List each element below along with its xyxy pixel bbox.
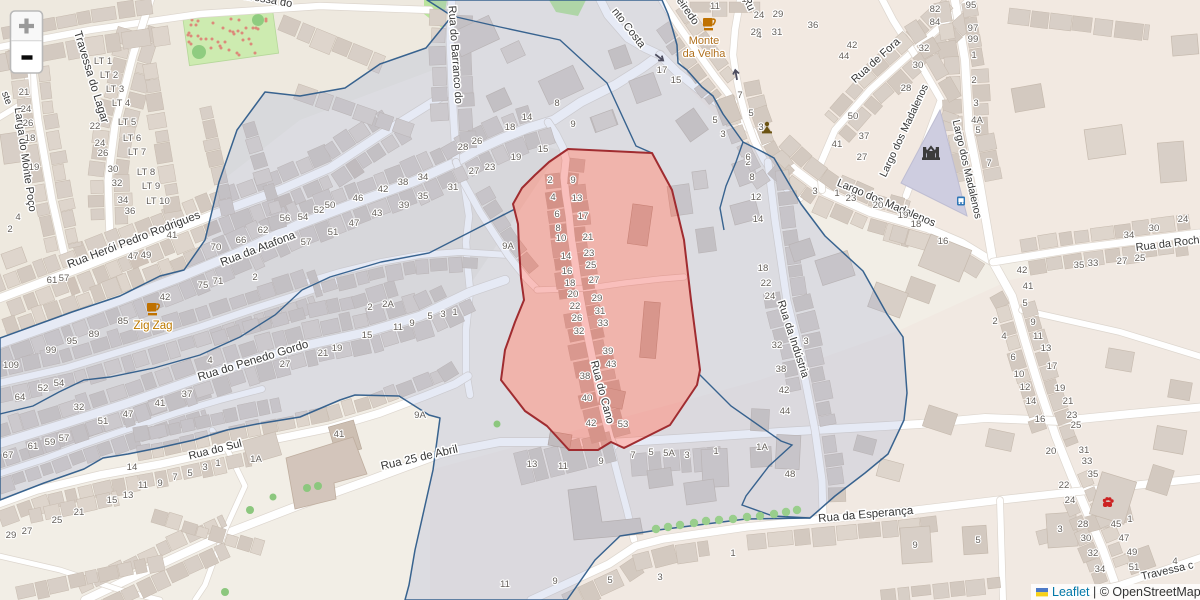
svg-text:4: 4 bbox=[207, 355, 213, 366]
svg-text:3: 3 bbox=[1057, 524, 1062, 535]
svg-text:3: 3 bbox=[812, 186, 817, 197]
svg-text:27: 27 bbox=[589, 275, 600, 286]
svg-text:9A: 9A bbox=[414, 410, 426, 421]
svg-text:9: 9 bbox=[552, 576, 557, 587]
svg-text:19: 19 bbox=[29, 162, 40, 173]
svg-text:24: 24 bbox=[1065, 495, 1076, 506]
svg-text:14: 14 bbox=[127, 462, 138, 473]
svg-text:27: 27 bbox=[469, 166, 480, 177]
svg-text:97: 97 bbox=[968, 23, 979, 34]
svg-text:28: 28 bbox=[901, 83, 912, 94]
svg-text:42: 42 bbox=[586, 418, 597, 429]
svg-text:25: 25 bbox=[586, 260, 597, 271]
svg-text:75: 75 bbox=[198, 280, 209, 291]
svg-text:30: 30 bbox=[1149, 223, 1160, 234]
svg-text:35: 35 bbox=[1074, 260, 1085, 271]
svg-text:27: 27 bbox=[22, 526, 33, 537]
svg-text:20: 20 bbox=[873, 200, 884, 211]
svg-text:24: 24 bbox=[21, 104, 32, 115]
svg-text:LT 4: LT 4 bbox=[112, 98, 131, 109]
svg-text:9A: 9A bbox=[502, 241, 514, 252]
svg-text:14: 14 bbox=[1026, 396, 1037, 407]
svg-text:42: 42 bbox=[779, 385, 790, 396]
svg-text:11: 11 bbox=[393, 322, 403, 333]
svg-text:LT 1: LT 1 bbox=[94, 56, 112, 67]
svg-text:LT 8: LT 8 bbox=[137, 167, 155, 178]
svg-text:4: 4 bbox=[756, 30, 762, 41]
svg-text:31: 31 bbox=[772, 27, 783, 38]
svg-text:26: 26 bbox=[23, 118, 34, 129]
svg-text:20: 20 bbox=[568, 289, 579, 300]
svg-text:50: 50 bbox=[325, 200, 336, 211]
svg-text:21: 21 bbox=[74, 507, 85, 518]
svg-text:2: 2 bbox=[992, 316, 997, 327]
svg-text:43: 43 bbox=[606, 359, 617, 370]
svg-text:46: 46 bbox=[353, 193, 364, 204]
svg-text:2A: 2A bbox=[382, 299, 394, 310]
svg-text:31: 31 bbox=[1079, 445, 1090, 456]
svg-text:2: 2 bbox=[971, 75, 976, 86]
svg-text:2: 2 bbox=[7, 224, 12, 235]
svg-text:LT 7: LT 7 bbox=[128, 147, 146, 158]
svg-text:32: 32 bbox=[112, 178, 123, 189]
svg-text:17: 17 bbox=[657, 65, 668, 76]
svg-text:da Velha: da Velha bbox=[683, 48, 727, 60]
svg-text:12: 12 bbox=[1020, 382, 1031, 393]
svg-text:LT 2: LT 2 bbox=[100, 70, 118, 81]
svg-text:49: 49 bbox=[1127, 547, 1138, 558]
svg-text:8: 8 bbox=[749, 172, 754, 183]
svg-text:5: 5 bbox=[748, 108, 753, 119]
svg-text:67: 67 bbox=[3, 450, 14, 461]
svg-text:38: 38 bbox=[580, 371, 591, 382]
svg-text:39: 39 bbox=[399, 200, 410, 211]
svg-text:14: 14 bbox=[522, 112, 533, 123]
svg-text:Leaflet: Leaflet bbox=[1052, 585, 1090, 599]
svg-text:54: 54 bbox=[298, 212, 309, 223]
svg-text:32: 32 bbox=[574, 326, 585, 337]
svg-text:32: 32 bbox=[772, 340, 783, 351]
svg-text:26: 26 bbox=[572, 313, 583, 324]
svg-text:18: 18 bbox=[25, 133, 36, 144]
svg-text:11: 11 bbox=[710, 1, 720, 12]
svg-text:4: 4 bbox=[1172, 556, 1178, 567]
svg-text:25: 25 bbox=[52, 515, 63, 526]
svg-text:64: 64 bbox=[15, 392, 26, 403]
svg-text:42: 42 bbox=[160, 292, 171, 303]
svg-text:53: 53 bbox=[618, 419, 629, 430]
svg-text:99: 99 bbox=[46, 345, 57, 356]
svg-text:19: 19 bbox=[332, 343, 343, 354]
svg-text:Zig Zag: Zig Zag bbox=[134, 320, 173, 332]
svg-text:LT 10: LT 10 bbox=[146, 196, 170, 207]
svg-text:25: 25 bbox=[1071, 420, 1082, 431]
svg-text:32: 32 bbox=[74, 402, 85, 413]
svg-text:42: 42 bbox=[847, 40, 858, 51]
svg-text:51: 51 bbox=[328, 227, 339, 238]
svg-text:18: 18 bbox=[758, 263, 769, 274]
svg-text:51: 51 bbox=[1129, 562, 1140, 573]
svg-text:24: 24 bbox=[754, 10, 765, 21]
svg-text:5A: 5A bbox=[663, 448, 675, 459]
svg-text:26: 26 bbox=[472, 136, 483, 147]
svg-text:36: 36 bbox=[125, 206, 136, 217]
svg-text:30: 30 bbox=[1081, 533, 1092, 544]
svg-text:1: 1 bbox=[730, 548, 735, 559]
svg-text:11: 11 bbox=[558, 461, 568, 472]
svg-text:3: 3 bbox=[202, 462, 207, 473]
svg-text:1A: 1A bbox=[250, 454, 262, 465]
svg-text:7: 7 bbox=[737, 90, 742, 101]
svg-text:9: 9 bbox=[1030, 317, 1035, 328]
svg-text:18: 18 bbox=[565, 278, 576, 289]
svg-text:34: 34 bbox=[118, 195, 129, 206]
svg-text:71: 71 bbox=[213, 276, 224, 287]
svg-text:34: 34 bbox=[1124, 230, 1135, 241]
svg-text:11: 11 bbox=[1033, 331, 1043, 342]
svg-text:4: 4 bbox=[15, 212, 21, 223]
svg-text:37: 37 bbox=[182, 389, 193, 400]
svg-text:1: 1 bbox=[741, 0, 746, 5]
svg-text:4: 4 bbox=[1001, 331, 1007, 342]
svg-text:8: 8 bbox=[554, 98, 559, 109]
svg-text:5: 5 bbox=[712, 115, 717, 126]
svg-text:31: 31 bbox=[595, 306, 606, 317]
svg-text:43: 43 bbox=[372, 208, 383, 219]
svg-text:29: 29 bbox=[592, 293, 603, 304]
svg-text:23: 23 bbox=[584, 248, 595, 259]
svg-text:34: 34 bbox=[1095, 564, 1106, 575]
svg-text:45: 45 bbox=[1111, 519, 1122, 530]
svg-text:11: 11 bbox=[138, 480, 148, 491]
svg-text:40: 40 bbox=[582, 393, 593, 404]
svg-text:32: 32 bbox=[1088, 548, 1099, 559]
svg-text:42: 42 bbox=[378, 184, 389, 195]
svg-text:47: 47 bbox=[128, 251, 139, 262]
svg-text:5: 5 bbox=[648, 447, 653, 458]
svg-text:32: 32 bbox=[919, 43, 930, 54]
svg-text:23: 23 bbox=[485, 162, 496, 173]
svg-text:39: 39 bbox=[603, 346, 614, 357]
svg-text:52: 52 bbox=[314, 205, 325, 216]
svg-text:LT 6: LT 6 bbox=[123, 133, 141, 144]
svg-text:21: 21 bbox=[1063, 396, 1074, 407]
svg-text:62: 62 bbox=[258, 225, 269, 236]
svg-text:7: 7 bbox=[986, 158, 991, 169]
svg-text:1: 1 bbox=[215, 458, 220, 469]
svg-text:3: 3 bbox=[657, 572, 662, 583]
svg-text:| © OpenStreetMap: | © OpenStreetMap bbox=[1093, 585, 1200, 599]
svg-text:5: 5 bbox=[187, 468, 192, 479]
svg-text:9: 9 bbox=[912, 540, 917, 551]
svg-text:LT 9: LT 9 bbox=[142, 181, 160, 192]
svg-text:22: 22 bbox=[1059, 480, 1070, 491]
svg-text:41: 41 bbox=[167, 230, 178, 241]
svg-text:2: 2 bbox=[547, 175, 552, 186]
svg-text:28: 28 bbox=[458, 142, 469, 153]
svg-text:41: 41 bbox=[1023, 281, 1034, 292]
svg-text:47: 47 bbox=[123, 409, 134, 420]
svg-text:21: 21 bbox=[583, 232, 594, 243]
svg-text:52: 52 bbox=[38, 383, 49, 394]
svg-text:10: 10 bbox=[556, 233, 567, 244]
svg-text:95: 95 bbox=[966, 0, 977, 11]
svg-text:Monte: Monte bbox=[689, 35, 720, 47]
svg-text:27: 27 bbox=[857, 152, 868, 163]
svg-text:25: 25 bbox=[1135, 253, 1146, 264]
svg-text:24: 24 bbox=[1178, 214, 1189, 225]
svg-text:19: 19 bbox=[1055, 383, 1066, 394]
svg-text:1: 1 bbox=[713, 446, 718, 457]
svg-text:5: 5 bbox=[427, 311, 432, 322]
svg-text:18: 18 bbox=[505, 122, 516, 133]
svg-text:82: 82 bbox=[930, 4, 941, 15]
svg-text:3: 3 bbox=[803, 336, 808, 347]
svg-text:9: 9 bbox=[409, 318, 414, 329]
svg-text:95: 95 bbox=[67, 336, 78, 347]
svg-text:10: 10 bbox=[1014, 369, 1025, 380]
svg-text:5: 5 bbox=[607, 575, 612, 586]
svg-text:9: 9 bbox=[570, 119, 575, 130]
svg-text:6: 6 bbox=[1010, 352, 1015, 363]
svg-text:18: 18 bbox=[911, 219, 922, 230]
svg-text:35: 35 bbox=[418, 191, 429, 202]
svg-text:3: 3 bbox=[758, 122, 763, 133]
svg-text:6: 6 bbox=[745, 152, 750, 163]
svg-text:38: 38 bbox=[398, 177, 409, 188]
svg-text:35: 35 bbox=[1088, 469, 1099, 480]
svg-text:5: 5 bbox=[975, 125, 980, 136]
svg-text:22: 22 bbox=[90, 121, 101, 132]
svg-text:22: 22 bbox=[761, 278, 772, 289]
svg-text:41: 41 bbox=[155, 398, 166, 409]
svg-text:4: 4 bbox=[550, 192, 556, 203]
svg-text:13: 13 bbox=[527, 459, 538, 470]
svg-text:16: 16 bbox=[938, 236, 949, 247]
svg-text:13: 13 bbox=[1041, 343, 1052, 354]
svg-text:56: 56 bbox=[280, 213, 291, 224]
svg-text:31: 31 bbox=[448, 182, 459, 193]
svg-text:50: 50 bbox=[848, 111, 859, 122]
svg-text:7: 7 bbox=[630, 450, 635, 461]
svg-text:19: 19 bbox=[511, 152, 522, 163]
svg-text:3: 3 bbox=[440, 309, 445, 320]
svg-text:1: 1 bbox=[834, 188, 839, 199]
svg-text:9: 9 bbox=[157, 478, 162, 489]
svg-text:99: 99 bbox=[968, 34, 979, 45]
svg-text:21: 21 bbox=[318, 348, 329, 359]
svg-text:29: 29 bbox=[773, 9, 784, 20]
svg-text:48: 48 bbox=[785, 469, 796, 480]
svg-text:5: 5 bbox=[1022, 298, 1027, 309]
svg-text:19: 19 bbox=[898, 210, 909, 221]
svg-text:33: 33 bbox=[598, 318, 609, 329]
svg-text:15: 15 bbox=[107, 495, 118, 506]
svg-text:66: 66 bbox=[236, 235, 247, 246]
svg-text:30: 30 bbox=[913, 60, 924, 71]
svg-text:41: 41 bbox=[832, 139, 843, 150]
svg-text:12: 12 bbox=[751, 192, 762, 203]
svg-text:3: 3 bbox=[720, 129, 725, 140]
svg-text:57: 57 bbox=[59, 433, 70, 444]
svg-text:14: 14 bbox=[561, 251, 572, 262]
svg-text:14: 14 bbox=[753, 214, 764, 225]
svg-text:20: 20 bbox=[1046, 446, 1057, 457]
svg-text:7: 7 bbox=[172, 472, 177, 483]
svg-text:LT 5: LT 5 bbox=[118, 117, 136, 128]
svg-text:17: 17 bbox=[578, 211, 589, 222]
svg-text:28: 28 bbox=[1078, 519, 1089, 530]
svg-text:44: 44 bbox=[780, 406, 791, 417]
svg-text:15: 15 bbox=[362, 330, 373, 341]
svg-text:47: 47 bbox=[349, 218, 360, 229]
svg-text:84: 84 bbox=[930, 17, 941, 28]
svg-text:1A: 1A bbox=[756, 442, 768, 453]
svg-text:13: 13 bbox=[123, 490, 134, 501]
svg-text:57: 57 bbox=[59, 273, 70, 284]
svg-text:109: 109 bbox=[3, 360, 19, 371]
svg-text:24: 24 bbox=[765, 291, 776, 302]
svg-text:54: 54 bbox=[54, 378, 65, 389]
svg-text:47: 47 bbox=[1119, 533, 1130, 544]
svg-text:16: 16 bbox=[562, 266, 573, 277]
svg-text:23: 23 bbox=[846, 193, 857, 204]
svg-text:2: 2 bbox=[252, 272, 257, 283]
svg-text:9: 9 bbox=[570, 175, 575, 186]
svg-text:61: 61 bbox=[28, 441, 39, 452]
svg-text:29: 29 bbox=[6, 530, 17, 541]
svg-text:13: 13 bbox=[572, 193, 583, 204]
svg-text:36: 36 bbox=[808, 20, 819, 31]
svg-text:41: 41 bbox=[334, 429, 345, 440]
svg-text:57: 57 bbox=[301, 237, 312, 248]
svg-text:33: 33 bbox=[1082, 456, 1093, 467]
svg-text:33: 33 bbox=[1088, 258, 1099, 269]
svg-text:3: 3 bbox=[684, 450, 689, 461]
svg-text:34: 34 bbox=[418, 172, 429, 183]
svg-text:1: 1 bbox=[971, 50, 976, 61]
svg-text:6: 6 bbox=[554, 209, 559, 220]
svg-text:5: 5 bbox=[975, 535, 980, 546]
svg-text:17: 17 bbox=[1047, 361, 1058, 372]
svg-text:85: 85 bbox=[118, 316, 129, 327]
svg-text:22: 22 bbox=[570, 301, 581, 312]
svg-text:2: 2 bbox=[367, 302, 372, 313]
svg-text:70: 70 bbox=[211, 242, 222, 253]
svg-text:LT 3: LT 3 bbox=[106, 84, 124, 95]
svg-text:37: 37 bbox=[859, 131, 870, 142]
svg-text:27: 27 bbox=[280, 359, 291, 370]
svg-text:15: 15 bbox=[538, 144, 549, 155]
svg-text:30: 30 bbox=[108, 164, 119, 175]
svg-text:3: 3 bbox=[973, 98, 978, 109]
svg-text:44: 44 bbox=[839, 51, 850, 62]
svg-text:89: 89 bbox=[89, 329, 100, 340]
svg-text:49: 49 bbox=[141, 250, 152, 261]
svg-text:59: 59 bbox=[45, 437, 56, 448]
svg-text:51: 51 bbox=[98, 416, 109, 427]
svg-text:15: 15 bbox=[671, 75, 682, 86]
svg-text:38: 38 bbox=[776, 364, 787, 375]
svg-text:16: 16 bbox=[1035, 414, 1046, 425]
svg-text:1: 1 bbox=[452, 307, 457, 318]
svg-text:42: 42 bbox=[1017, 265, 1028, 276]
svg-text:11: 11 bbox=[500, 579, 510, 590]
svg-text:1: 1 bbox=[1127, 514, 1132, 525]
svg-text:9: 9 bbox=[598, 456, 603, 467]
svg-text:61: 61 bbox=[47, 275, 58, 286]
svg-text:26: 26 bbox=[98, 148, 109, 159]
svg-text:21: 21 bbox=[19, 87, 30, 98]
svg-text:27: 27 bbox=[1117, 256, 1128, 267]
